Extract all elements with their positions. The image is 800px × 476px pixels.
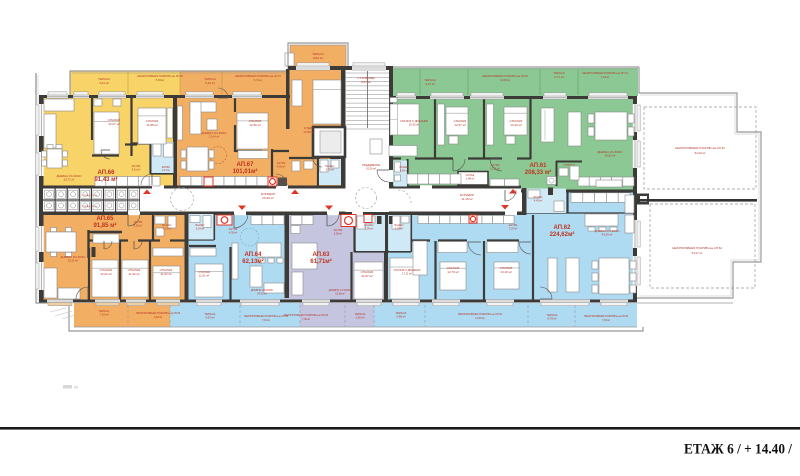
svg-text:4,92 м²: 4,92 м² — [277, 164, 286, 168]
svg-text:224,62м²: 224,62м² — [550, 231, 575, 238]
svg-text:12,07 м²: 12,07 м² — [108, 122, 119, 126]
svg-text:ПРЕДДВЕРИЕ: ПРЕДДВЕРИЕ — [362, 163, 380, 167]
svg-text:4,50 м²: 4,50 м² — [400, 168, 409, 172]
svg-text:91,85 м²: 91,85 м² — [93, 222, 116, 229]
svg-text:9,93 м²: 9,93 м² — [154, 316, 162, 319]
svg-text:7,07 м²: 7,07 м² — [509, 226, 518, 230]
svg-text:7,10 м²: 7,10 м² — [601, 75, 610, 79]
svg-text:НЕИЗПОЛЗВАЕМ ПОКРИВ към АП.67: НЕИЗПОЛЗВАЕМ ПОКРИВ към АП.67 — [235, 74, 282, 78]
svg-text:54,27 м²: 54,27 м² — [692, 251, 703, 255]
svg-text:11,88 м²: 11,88 м² — [146, 123, 157, 127]
svg-text:23,68 м²: 23,68 м² — [335, 292, 345, 295]
svg-text:10,26 м²: 10,26 м² — [366, 167, 376, 171]
svg-text:12,79 м²: 12,79 м² — [447, 270, 458, 274]
svg-text:208,33 м²: 208,33 м² — [525, 169, 551, 176]
svg-text:4,24 м²: 4,24 м² — [99, 81, 109, 85]
svg-text:6,90 м²: 6,90 м² — [334, 231, 343, 235]
svg-text:14,68 м²: 14,68 м² — [500, 78, 510, 82]
svg-text:БАНЬО: БАНЬО — [400, 165, 409, 169]
svg-text:13,40 м²: 13,40 м² — [500, 270, 511, 274]
svg-text:13,26 м²: 13,26 м² — [510, 123, 521, 127]
svg-text:62,13м²: 62,13м² — [242, 258, 263, 265]
svg-text:БАНЬО: БАНЬО — [365, 223, 374, 227]
svg-text:НЕИЗПОЛЗВАЕМ ПОКРИВ към АП.61: НЕИЗПОЛЗВАЕМ ПОКРИВ към АП.61 — [582, 71, 629, 75]
svg-text:АНТРЕ: АНТРЕ — [491, 163, 500, 167]
svg-text:7,39 м²: 7,39 м² — [602, 319, 610, 322]
svg-text:17,80 м²: 17,80 м² — [303, 130, 314, 134]
svg-text:НЕИЗПОЛЗВАЕМ ПОКРИВ към АП.63: НЕИЗПОЛЗВАЕМ ПОКРИВ към АП.63 — [284, 314, 329, 317]
svg-text:АП.61: АП.61 — [530, 163, 548, 169]
svg-text:91,43 м²: 91,43 м² — [94, 176, 117, 183]
svg-text:23,11 м²: 23,11 м² — [68, 259, 78, 263]
svg-text:СКЛАД 1,52 м²: СКЛАД 1,52 м² — [82, 205, 97, 208]
svg-text:АНТРЕ: АНТРЕ — [277, 161, 286, 165]
svg-text:3,29 м²: 3,29 м² — [395, 226, 404, 230]
svg-text:21,64 м²: 21,64 м² — [209, 135, 220, 139]
svg-text:БАНЬО: БАНЬО — [326, 164, 335, 168]
svg-text:АНТРЕ: АНТРЕ — [229, 227, 238, 231]
svg-text:БАНЬО: БАНЬО — [163, 223, 172, 227]
svg-text:3,37 м²: 3,37 м² — [425, 82, 435, 86]
svg-text:НЕИЗПОЛЗВАЕМ ПОКРИВ към АП.62: НЕИЗПОЛЗВАЕМ ПОКРИВ към АП.62 — [675, 146, 725, 150]
svg-text:4,23 м²: 4,23 м² — [163, 226, 172, 230]
svg-text:5,74 м²: 5,74 м² — [254, 78, 263, 82]
svg-text:24,05 м²: 24,05 м² — [257, 292, 267, 295]
svg-text:10,11 м²: 10,11 м² — [490, 166, 500, 170]
svg-text:11,87 м²: 11,87 м² — [361, 274, 372, 278]
svg-text:11,92 м²: 11,92 м² — [128, 272, 139, 276]
svg-text:11,61 м²: 11,61 м² — [199, 274, 209, 278]
svg-text:6,71 м²: 6,71 м² — [554, 75, 564, 79]
svg-text:НЕИЗПОЛЗВАЕМ ПОКРИВ към АП.61: НЕИЗПОЛЗВАЕМ ПОКРИВ към АП.61 — [482, 74, 529, 78]
svg-text:5,65 м²: 5,65 м² — [134, 223, 143, 227]
svg-text:НЕИЗПОЛЗВАЕМ ПОКРИВ към АП.66: НЕИЗПОЛЗВАЕМ ПОКРИВ към АП.66 — [137, 74, 184, 78]
svg-text:12,56 м²: 12,56 м² — [249, 123, 260, 127]
svg-text:АНТРЕ: АНТРЕ — [134, 220, 143, 224]
svg-text:12,02 м²: 12,02 м² — [100, 272, 111, 276]
svg-text:16,35 м²: 16,35 м² — [409, 123, 419, 127]
svg-text:11,18 м²: 11,18 м² — [461, 197, 472, 201]
svg-text:НЕИЗПОЛЗВАЕМ ПОКРИВ към АП.62: НЕИЗПОЛЗВАЕМ ПОКРИВ към АП.62 — [458, 313, 503, 316]
svg-text:9,03 м²: 9,03 м² — [205, 316, 214, 320]
svg-text:3,24 м²: 3,24 м² — [196, 226, 205, 230]
svg-text:17,11 м²: 17,11 м² — [402, 271, 412, 275]
svg-text:30,50 м²: 30,50 м² — [605, 154, 616, 158]
svg-text:БАНЬО: БАНЬО — [534, 195, 543, 199]
svg-text:СКЛАД 1,52 м²: СКЛАД 1,52 м² — [82, 194, 97, 197]
svg-text:ЕТАЖ 6 / + 14.40 /: ЕТАЖ 6 / + 14.40 / — [684, 442, 793, 458]
svg-text:БАНЬО: БАНЬО — [196, 223, 205, 227]
svg-text:БАНЬО: БАНЬО — [395, 223, 404, 227]
svg-text:61,71м²: 61,71м² — [310, 258, 331, 265]
svg-text:3,43 м²: 3,43 м² — [205, 81, 215, 85]
svg-text:12,65 м²: 12,65 м² — [475, 317, 485, 320]
svg-text:АНТРЕ: АНТРЕ — [132, 164, 141, 168]
svg-text:11,02 м²: 11,02 м² — [160, 272, 171, 276]
svg-text:20,71 м²: 20,71 м² — [64, 178, 75, 182]
svg-text:НЕИЗПОЛЗВАЕМ ПОКРИВ към АП.65: НЕИЗПОЛЗВАЕМ ПОКРИВ към АП.65 — [136, 312, 181, 315]
svg-text:НЕИЗПОЛЗВАЕМ ПОКРИВ към АП.64: НЕИЗПОЛЗВАЕМ ПОКРИВ към АП.64 — [244, 315, 289, 318]
svg-text:26,60 м²: 26,60 м² — [262, 196, 273, 200]
svg-text:34,28 м²: 34,28 м² — [602, 233, 613, 237]
svg-text:СКЛАД: СКЛАД — [466, 173, 475, 177]
svg-text:7,30 м²: 7,30 м² — [302, 318, 310, 321]
svg-text:12,57 м²: 12,57 м² — [454, 123, 465, 127]
svg-text:8,87 м²: 8,87 м² — [361, 80, 371, 84]
svg-text:АНТРЕ: АНТРЕ — [334, 228, 343, 232]
svg-text:4,61 м²: 4,61 м² — [132, 167, 141, 171]
svg-text:4,35 м²: 4,35 м² — [229, 230, 238, 234]
svg-text:3,78 м²: 3,78 м² — [326, 167, 335, 171]
svg-text:4,43 м²: 4,43 м² — [534, 198, 543, 202]
svg-text:8,78 м²: 8,78 м² — [547, 317, 556, 321]
svg-text:8,83 м²: 8,83 м² — [313, 56, 323, 60]
svg-text:АП.63: АП.63 — [313, 252, 331, 258]
svg-text:54,29 м²: 54,29 м² — [695, 151, 706, 155]
svg-text:2,59 м²: 2,59 м² — [365, 226, 374, 230]
svg-text:НЕИЗПОЛЗВАЕМ ПОКРИВ към АП.62: НЕИЗПОЛЗВАЕМ ПОКРИВ към АП.62 — [584, 315, 629, 318]
svg-text:АП.62: АП.62 — [554, 225, 572, 231]
svg-text:1,48 м²: 1,48 м² — [466, 176, 475, 180]
svg-text:СПАЛНЯ С ДРЕШНИК: СПАЛНЯ С ДРЕШНИК — [393, 268, 421, 272]
svg-text:АП.64: АП.64 — [245, 252, 263, 258]
svg-text:7,34 м²: 7,34 м² — [262, 319, 270, 322]
svg-text:АП.66: АП.66 — [98, 170, 116, 176]
svg-text:2,14 м²: 2,14 м² — [162, 169, 170, 172]
svg-text:6,98 м²: 6,98 м² — [396, 315, 405, 319]
svg-text:ГАРДЕРОБ: ГАРДЕРОБ — [563, 164, 575, 167]
svg-text:101,01м²: 101,01м² — [233, 168, 258, 175]
svg-text:НЕИЗПОЛЗВАЕМ ПОКРИВ към АП.62: НЕИЗПОЛЗВАЕМ ПОКРИВ към АП.62 — [672, 246, 722, 250]
svg-text:СПАЛНЯ С ДРЕШНИК: СПАЛНЯ С ДРЕШНИК — [400, 119, 429, 123]
svg-text:АП.67: АП.67 — [237, 162, 255, 168]
svg-text:7,16 м²: 7,16 м² — [99, 313, 108, 317]
svg-text:АП.65: АП.65 — [97, 216, 115, 222]
svg-text:2,90 м²: 2,90 м² — [355, 316, 364, 320]
svg-text:5,93 м²: 5,93 м² — [156, 78, 165, 82]
svg-text:АНТРЕ: АНТРЕ — [509, 223, 518, 227]
